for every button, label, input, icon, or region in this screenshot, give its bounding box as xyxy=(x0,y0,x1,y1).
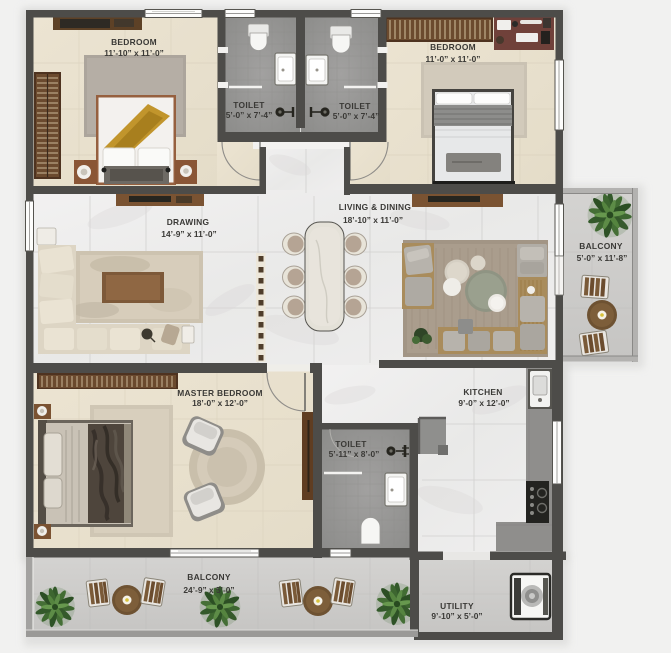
svg-text:KITCHEN: KITCHEN xyxy=(463,387,502,397)
svg-text:11’-10” x 11’-0”: 11’-10” x 11’-0” xyxy=(104,48,164,58)
svg-text:LIVING & DINING: LIVING & DINING xyxy=(339,202,411,212)
svg-text:24’-9” x 5’-0”: 24’-9” x 5’-0” xyxy=(183,585,234,595)
svg-text:DRAWING: DRAWING xyxy=(167,217,210,227)
svg-text:14’-9” x 11’-0”: 14’-9” x 11’-0” xyxy=(161,229,216,239)
svg-text:BALCONY: BALCONY xyxy=(187,572,231,582)
svg-text:5’-11” x 8’-0”: 5’-11” x 8’-0” xyxy=(329,449,380,459)
svg-text:MASTER BEDROOM: MASTER BEDROOM xyxy=(177,388,263,398)
svg-text:UTILITY: UTILITY xyxy=(440,601,474,611)
svg-text:18’-0” x 12’-0”: 18’-0” x 12’-0” xyxy=(192,398,248,408)
svg-text:BEDROOM: BEDROOM xyxy=(111,37,157,47)
svg-text:TOILET: TOILET xyxy=(339,101,371,111)
svg-text:18’-10” x 11’-0”: 18’-10” x 11’-0” xyxy=(343,215,403,225)
svg-text:BALCONY: BALCONY xyxy=(579,241,623,251)
svg-text:5’-0” x 7’-4”: 5’-0” x 7’-4” xyxy=(333,111,380,121)
svg-text:11’-0” x 11’-0”: 11’-0” x 11’-0” xyxy=(426,54,481,64)
svg-text:5’-0” x 11’-8”: 5’-0” x 11’-8” xyxy=(577,253,628,263)
svg-text:TOILET: TOILET xyxy=(233,100,265,110)
svg-text:5’-0” x 7’-4”: 5’-0” x 7’-4” xyxy=(226,110,273,120)
svg-text:TOILET: TOILET xyxy=(335,439,367,449)
svg-text:9’-0” x 12’-0”: 9’-0” x 12’-0” xyxy=(458,398,509,408)
svg-text:9’-10” x 5’-0”: 9’-10” x 5’-0” xyxy=(431,611,482,621)
svg-text:BEDROOM: BEDROOM xyxy=(430,42,476,52)
